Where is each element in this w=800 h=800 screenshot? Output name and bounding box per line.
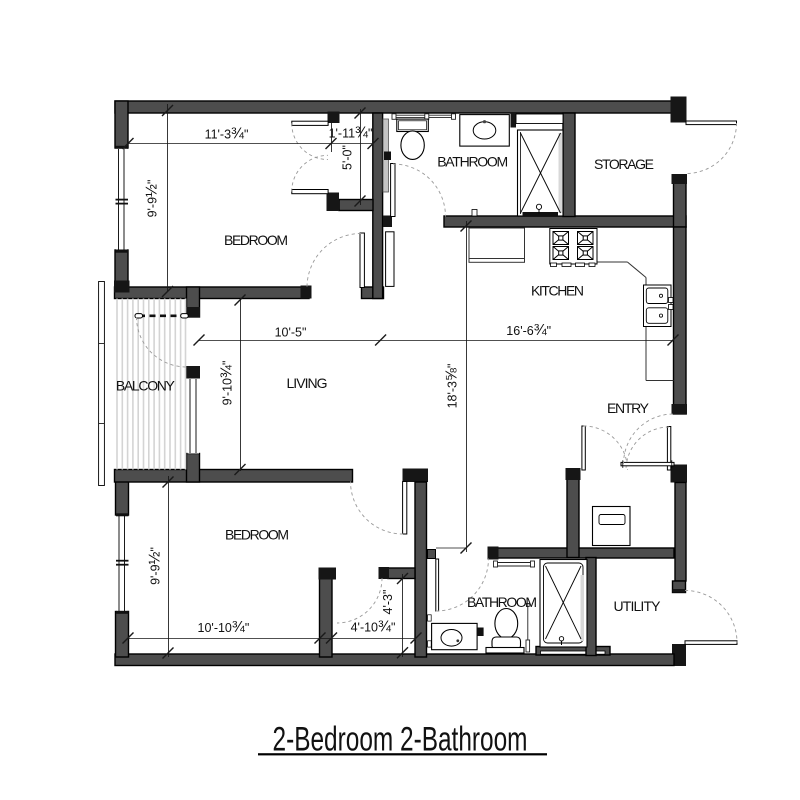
svg-text:4'-3": 4'-3" (381, 590, 395, 615)
svg-text:BATHROOM: BATHROOM (437, 154, 508, 170)
svg-text:BEDROOM: BEDROOM (224, 232, 288, 248)
svg-text:9'-9½": 9'-9½" (147, 547, 164, 585)
svg-text:LIVING: LIVING (287, 375, 328, 391)
svg-text:STORAGE: STORAGE (594, 156, 654, 172)
svg-text:1'-11¾": 1'-11¾" (329, 125, 373, 142)
svg-text:KITCHEN: KITCHEN (531, 283, 584, 299)
svg-text:BATHROOM: BATHROOM (467, 594, 537, 610)
svg-text:UTILITY: UTILITY (614, 598, 662, 614)
svg-text:9'-10¾": 9'-10¾" (219, 361, 236, 406)
svg-text:BEDROOM: BEDROOM (225, 527, 289, 543)
svg-text:16'-6¾": 16'-6¾" (506, 322, 551, 339)
svg-text:11'-3¾": 11'-3¾" (205, 126, 249, 143)
svg-text:10'-10¾": 10'-10¾" (198, 619, 250, 636)
svg-text:4'-10¾": 4'-10¾" (351, 619, 396, 636)
svg-text:5'-0": 5'-0" (341, 145, 355, 170)
svg-text:10'-5": 10'-5" (275, 326, 307, 340)
svg-text:BALCONY: BALCONY (116, 378, 176, 394)
svg-text:ENTRY: ENTRY (607, 400, 650, 416)
svg-text:18'-3⅝": 18'-3⅝" (444, 364, 461, 409)
svg-text:9'-9½": 9'-9½" (144, 180, 161, 218)
svg-text:2-Bedroom 2-Bathroom: 2-Bedroom 2-Bathroom (273, 721, 528, 759)
